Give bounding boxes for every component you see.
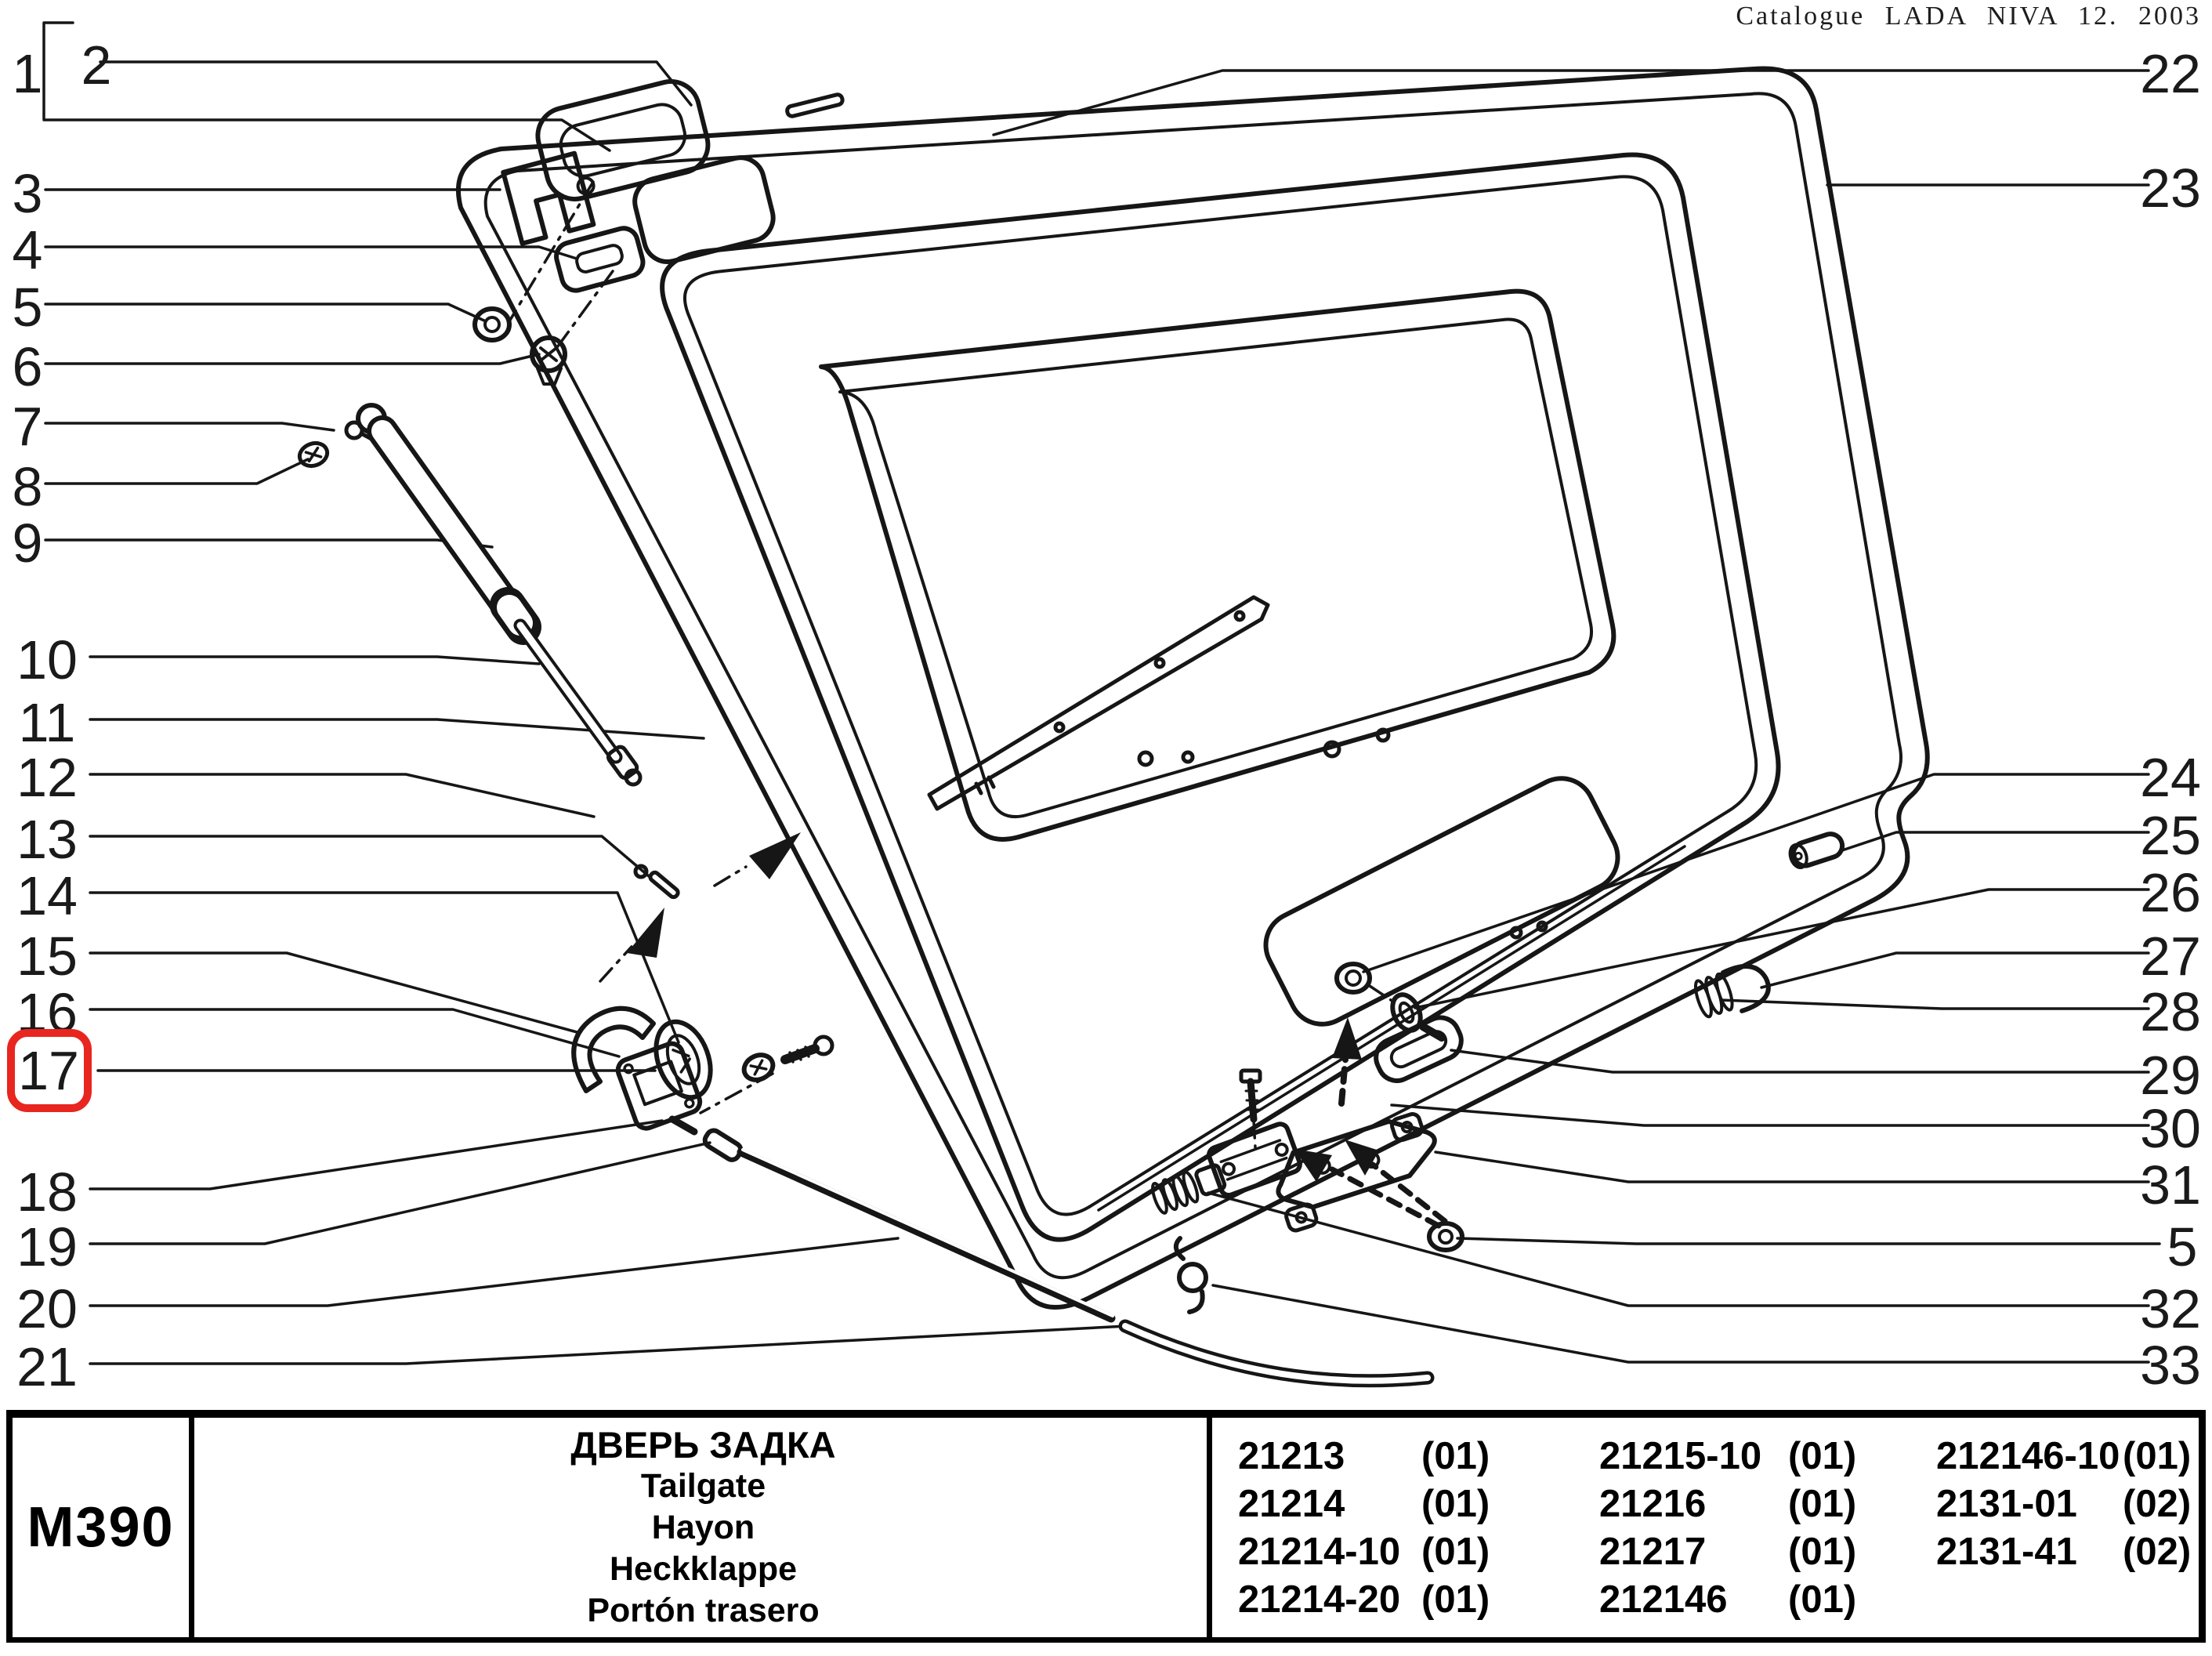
- callout-20: 20: [16, 1281, 78, 1336]
- tailgate-exploded-diagram: 1234567891011121314151617181920212223242…: [0, 0, 2212, 1411]
- callout-5-r: 5: [2167, 1219, 2198, 1274]
- hinge-cluster: [475, 64, 843, 384]
- callout-11: 11: [19, 695, 76, 750]
- callout-9: 9: [13, 516, 43, 571]
- table-title-line-4: Portón trasero: [587, 1590, 819, 1632]
- table-title-line-3: Heckklappe: [610, 1549, 797, 1590]
- callout-25-r: 25: [2140, 808, 2201, 863]
- callout-3: 3: [13, 166, 43, 221]
- table-title-line-2: Hayon: [652, 1507, 755, 1549]
- callout-31-r: 31: [2140, 1158, 2201, 1212]
- callout-30-r: 30: [2140, 1101, 2201, 1156]
- callout-10: 10: [16, 632, 78, 687]
- callout-14: 14: [16, 868, 78, 923]
- callout-27-r: 27: [2140, 929, 2201, 984]
- tailgate-panel: [662, 154, 1778, 1239]
- highlight-box: [7, 1029, 92, 1112]
- callout-26-r: 26: [2140, 865, 2201, 920]
- callout-13: 13: [16, 812, 78, 867]
- callout-4: 4: [13, 223, 43, 277]
- part-row-col3-0: 212146-10(01): [1218, 1433, 2199, 1479]
- diagram-artwork: [0, 0, 2212, 1411]
- insertion-arrow: [715, 832, 801, 886]
- table-title-line-1: Tailgate: [641, 1466, 766, 1507]
- callout-1: 1: [13, 46, 43, 101]
- part-model: 2131-41: [1936, 1529, 2077, 1574]
- part-row-col3-1: 2131-01(02): [1218, 1481, 2199, 1527]
- lock-cluster: [574, 866, 832, 1132]
- window-strip: [929, 597, 1268, 809]
- callout-23-r: 23: [2140, 161, 2201, 216]
- footer-table: M390 ДВЕРЬ ЗАДКАTailgateHayonHeckklappeP…: [6, 1410, 2206, 1643]
- callout-8: 8: [13, 459, 43, 514]
- part-model: 212146: [1599, 1577, 1728, 1622]
- table-title-line-0: ДВЕРЬ ЗАДКА: [570, 1424, 835, 1466]
- callout-12: 12: [16, 750, 78, 805]
- part-qty: (01): [2123, 1433, 2191, 1479]
- callout-18: 18: [16, 1165, 78, 1219]
- callout-6: 6: [13, 339, 43, 394]
- callout-15: 15: [16, 929, 78, 984]
- callout-21: 21: [16, 1339, 78, 1394]
- gas-strut: [296, 405, 640, 785]
- callout-32-r: 32: [2140, 1281, 2201, 1336]
- part-model: 2131-01: [1936, 1481, 2077, 1527]
- part-qty: (02): [2123, 1529, 2191, 1574]
- part-row-col2-3: 212146(01): [1218, 1577, 2199, 1622]
- callout-5: 5: [13, 280, 43, 335]
- part-model: 212146-10: [1936, 1433, 2120, 1479]
- callout-33-r: 33: [2140, 1338, 2201, 1393]
- part-qty: (02): [2123, 1481, 2191, 1527]
- page-code-cell: M390: [13, 1418, 194, 1637]
- applicability-cell: 21213(01)21214(01)21214-10(01)21214-20(0…: [1218, 1418, 2199, 1637]
- callout-7: 7: [13, 399, 43, 454]
- page-code: M390: [27, 1495, 174, 1560]
- callout-2: 2: [81, 38, 112, 92]
- callout-22-r: 22: [2140, 46, 2201, 101]
- callout-29-r: 29: [2140, 1048, 2201, 1103]
- callout-28-r: 28: [2140, 984, 2201, 1039]
- part-qty: (01): [1788, 1577, 1856, 1622]
- callout-19: 19: [16, 1219, 78, 1274]
- leader-lines: [44, 23, 2160, 1364]
- callout-24-r: 24: [2140, 750, 2201, 805]
- titles-cell: ДВЕРЬ ЗАДКАTailgateHayonHeckklappePortón…: [200, 1418, 1212, 1637]
- part-row-col3-2: 2131-41(02): [1218, 1529, 2199, 1574]
- catalog-page: Catalogue LADA NIVA 12. 2003: [0, 0, 2212, 1656]
